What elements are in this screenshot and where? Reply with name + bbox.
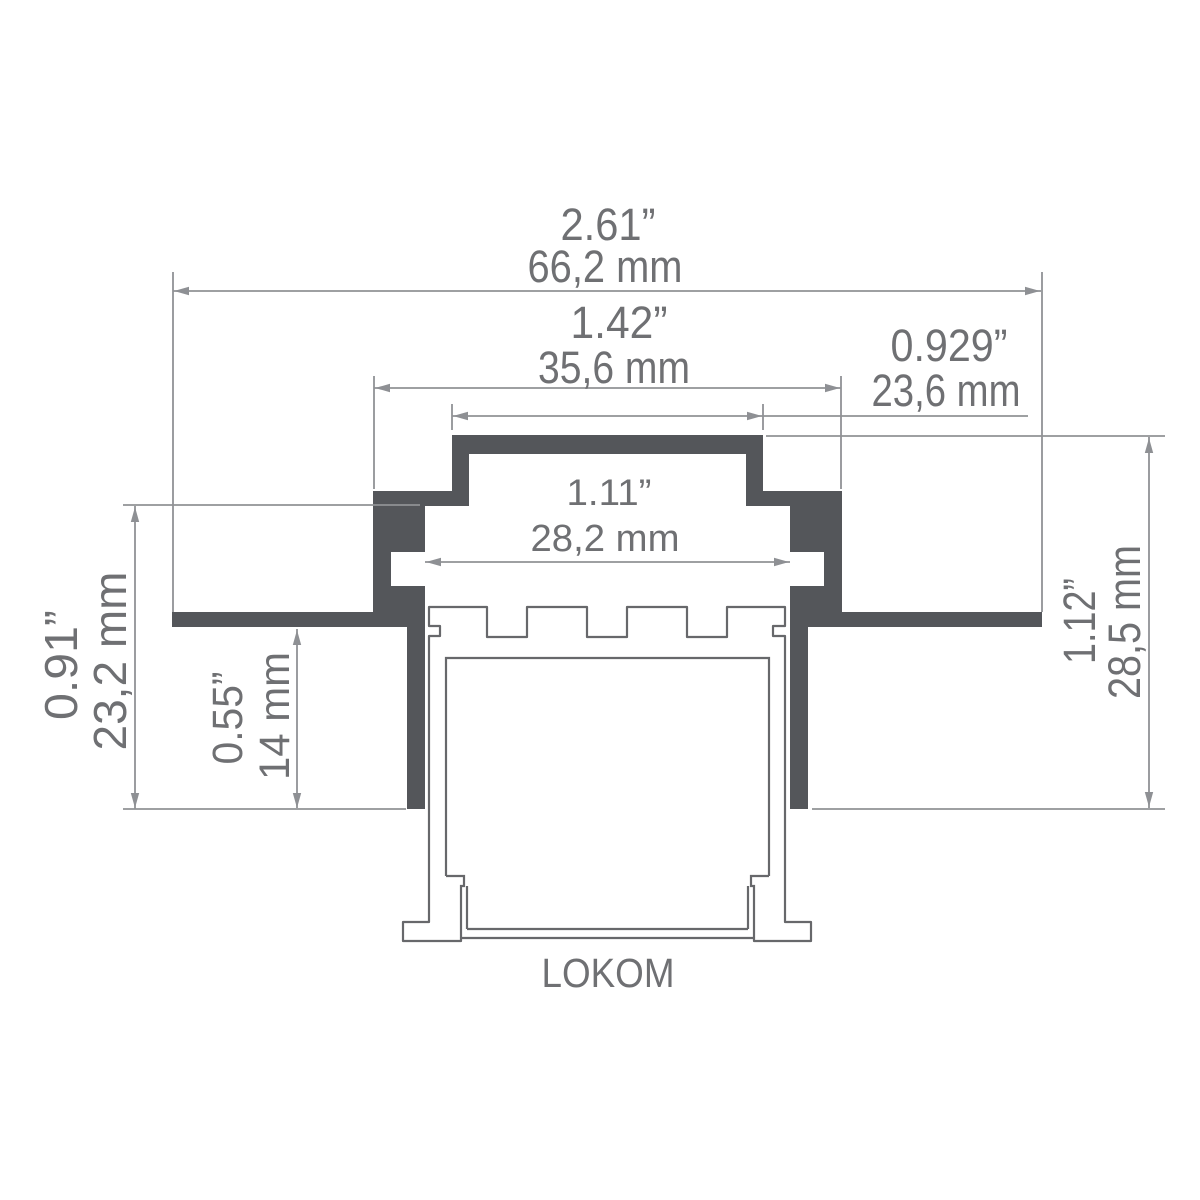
svg-text:35,6 mm: 35,6 mm (538, 342, 690, 393)
svg-text:23,6 mm: 23,6 mm (872, 365, 1021, 416)
svg-text:28,5 mm: 28,5 mm (1099, 545, 1150, 699)
svg-text:LOKOM: LOKOM (542, 950, 675, 996)
svg-text:1.11”: 1.11” (567, 472, 652, 513)
svg-text:28,2 mm: 28,2 mm (531, 518, 680, 560)
svg-text:0.91”: 0.91” (35, 610, 87, 720)
svg-text:23,2 mm: 23,2 mm (84, 572, 136, 751)
svg-text:0.929”: 0.929” (891, 320, 1008, 371)
svg-text:1.12”: 1.12” (1054, 578, 1105, 664)
svg-text:0.55”: 0.55” (204, 672, 252, 765)
svg-text:1.42”: 1.42” (571, 297, 668, 348)
svg-text:66,2 mm: 66,2 mm (528, 241, 683, 292)
svg-text:14 mm: 14 mm (251, 652, 299, 780)
